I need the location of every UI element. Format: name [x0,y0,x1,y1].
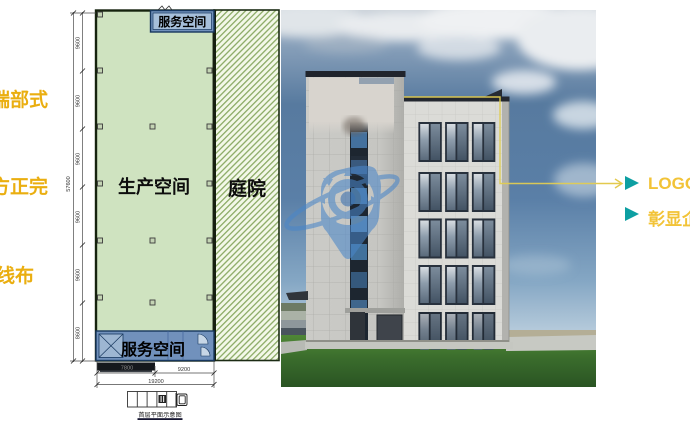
svg-text:57600: 57600 [66,176,72,192]
svg-text:9600: 9600 [76,37,82,49]
svg-text:9600: 9600 [76,269,82,281]
svg-text:9600: 9600 [76,211,82,223]
svg-text:9600: 9600 [76,95,82,107]
svg-text:9600: 9600 [76,153,82,165]
svg-text:9200: 9200 [178,367,190,373]
svg-text:首层平面示意图: 首层平面示意图 [138,411,181,419]
svg-text:8600: 8600 [76,327,82,339]
svg-text:19200: 19200 [148,379,164,385]
svg-text:7800: 7800 [121,366,133,372]
